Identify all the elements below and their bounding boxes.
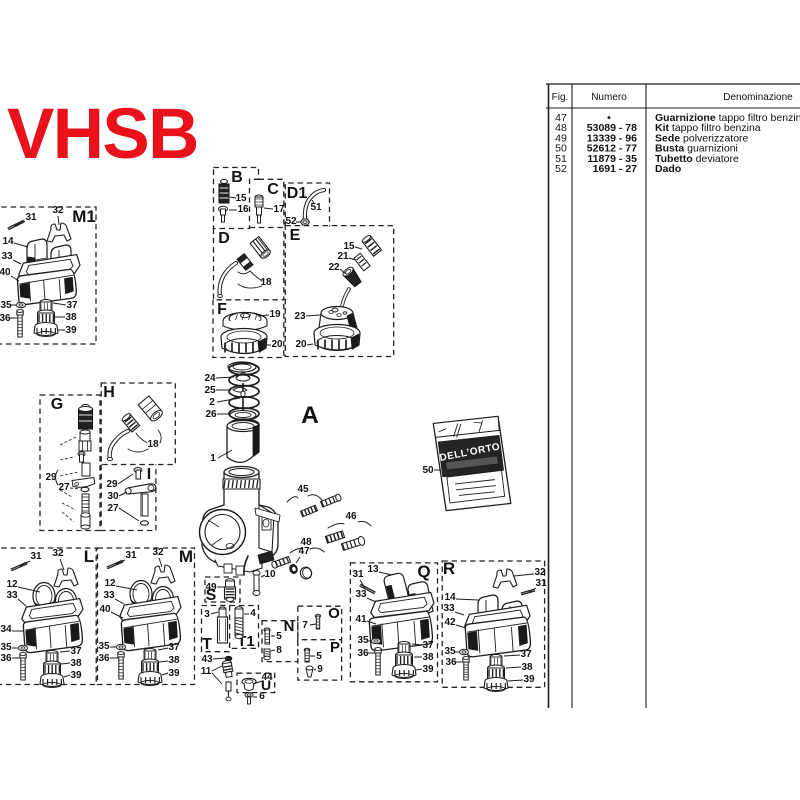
svg-text:Denominazione: Denominazione xyxy=(723,92,793,103)
svg-text:39: 39 xyxy=(70,670,82,681)
svg-text:12: 12 xyxy=(104,578,116,589)
svg-text:L: L xyxy=(84,547,94,566)
svg-text:31: 31 xyxy=(25,212,37,223)
svg-text:5: 5 xyxy=(276,631,282,642)
svg-text:34: 34 xyxy=(0,624,12,635)
svg-text:33: 33 xyxy=(6,590,18,601)
svg-text:18: 18 xyxy=(147,439,159,450)
svg-text:33: 33 xyxy=(443,603,455,614)
svg-text:38: 38 xyxy=(521,662,533,673)
svg-text:46: 46 xyxy=(345,511,357,522)
svg-text:38: 38 xyxy=(70,658,82,669)
svg-text:33: 33 xyxy=(355,589,367,600)
svg-text:F: F xyxy=(217,301,227,318)
svg-text:27: 27 xyxy=(58,482,70,493)
svg-text:T: T xyxy=(202,636,212,653)
svg-text:36: 36 xyxy=(0,313,11,324)
svg-text:35: 35 xyxy=(98,641,110,652)
svg-text:38: 38 xyxy=(65,312,77,323)
svg-text:39: 39 xyxy=(422,664,434,675)
svg-text:39: 39 xyxy=(65,325,77,336)
svg-text:19: 19 xyxy=(269,309,281,320)
svg-text:14: 14 xyxy=(2,236,14,247)
svg-text:24: 24 xyxy=(204,373,216,384)
svg-text:15: 15 xyxy=(235,193,247,204)
svg-text:6: 6 xyxy=(259,691,265,702)
svg-text:2: 2 xyxy=(209,397,215,408)
svg-text:35: 35 xyxy=(444,646,456,657)
svg-text:36: 36 xyxy=(0,653,12,664)
svg-text:B: B xyxy=(231,169,243,186)
svg-text:40: 40 xyxy=(0,267,11,278)
svg-text:Q: Q xyxy=(417,562,430,581)
svg-text:9: 9 xyxy=(317,664,323,675)
svg-text:43: 43 xyxy=(201,654,213,665)
svg-text:37: 37 xyxy=(70,646,82,657)
svg-text:38: 38 xyxy=(422,652,434,663)
svg-text:3: 3 xyxy=(204,609,210,620)
svg-text:33: 33 xyxy=(1,251,13,262)
svg-text:42: 42 xyxy=(444,617,456,628)
svg-text:13: 13 xyxy=(367,564,379,575)
svg-text:32: 32 xyxy=(52,548,64,559)
svg-text:52: 52 xyxy=(555,163,567,175)
svg-text:I: I xyxy=(147,466,151,483)
svg-text:33: 33 xyxy=(103,590,115,601)
svg-text:36: 36 xyxy=(445,657,457,668)
svg-text:11: 11 xyxy=(201,666,212,677)
svg-text:50: 50 xyxy=(422,465,434,476)
svg-text:D: D xyxy=(218,230,230,247)
svg-text:4: 4 xyxy=(250,608,256,619)
svg-text:12: 12 xyxy=(6,579,18,590)
svg-text:C: C xyxy=(267,181,279,198)
svg-text:31: 31 xyxy=(535,578,547,589)
svg-text:25: 25 xyxy=(204,385,216,396)
svg-text:47: 47 xyxy=(298,546,310,557)
svg-text:31: 31 xyxy=(352,569,364,580)
svg-text:52: 52 xyxy=(285,216,297,227)
svg-text:1691 - 27: 1691 - 27 xyxy=(593,163,638,175)
svg-text:14: 14 xyxy=(444,592,456,603)
svg-text:G: G xyxy=(51,396,63,413)
svg-text:A: A xyxy=(301,402,319,429)
svg-text:D1: D1 xyxy=(287,185,308,202)
svg-text:36: 36 xyxy=(98,653,110,664)
svg-text:5: 5 xyxy=(316,651,322,662)
svg-text:P: P xyxy=(330,639,340,656)
svg-text:32: 32 xyxy=(152,547,164,558)
svg-text:16: 16 xyxy=(237,204,249,215)
svg-text:32: 32 xyxy=(534,567,546,578)
svg-text:31: 31 xyxy=(30,551,42,562)
svg-text:31: 31 xyxy=(125,550,137,561)
svg-text:37: 37 xyxy=(168,642,180,653)
svg-text:30: 30 xyxy=(107,491,119,502)
svg-text:44: 44 xyxy=(261,672,273,683)
svg-text:35: 35 xyxy=(0,642,12,653)
svg-text:20: 20 xyxy=(271,339,283,350)
svg-text:VHSB: VHSB xyxy=(7,95,198,174)
svg-text:39: 39 xyxy=(168,668,180,679)
svg-text:27: 27 xyxy=(107,503,119,514)
svg-text:20: 20 xyxy=(295,339,307,350)
svg-text:38: 38 xyxy=(168,655,180,666)
svg-text:R: R xyxy=(443,559,455,578)
svg-text:E: E xyxy=(290,227,301,244)
svg-text:1: 1 xyxy=(210,453,216,464)
svg-text:37: 37 xyxy=(66,300,78,311)
svg-text:10: 10 xyxy=(264,569,276,580)
svg-text:21: 21 xyxy=(337,251,349,262)
svg-text:49: 49 xyxy=(205,582,217,593)
svg-text:51: 51 xyxy=(310,202,322,213)
svg-text:45: 45 xyxy=(297,484,309,495)
svg-text:7: 7 xyxy=(302,620,308,631)
svg-text:23: 23 xyxy=(294,311,306,322)
svg-text:32: 32 xyxy=(52,205,64,216)
svg-text:Dado: Dado xyxy=(655,163,681,175)
svg-text:8: 8 xyxy=(276,645,282,656)
svg-text:N: N xyxy=(284,618,295,635)
svg-text:37: 37 xyxy=(520,649,532,660)
svg-text:35: 35 xyxy=(357,635,369,646)
svg-text:35: 35 xyxy=(0,300,12,311)
svg-text:M1: M1 xyxy=(72,207,96,226)
svg-text:17: 17 xyxy=(273,204,285,215)
svg-text:22: 22 xyxy=(328,262,340,273)
svg-text:26: 26 xyxy=(205,409,217,420)
svg-text:M: M xyxy=(179,547,193,566)
svg-text:40: 40 xyxy=(99,604,111,615)
svg-text:37: 37 xyxy=(422,640,434,651)
svg-text:29: 29 xyxy=(106,479,118,490)
svg-text:Numero: Numero xyxy=(591,92,627,103)
svg-text:41: 41 xyxy=(355,614,367,625)
svg-text:H: H xyxy=(103,384,115,401)
svg-text:39: 39 xyxy=(523,674,535,685)
svg-text:Fig.: Fig. xyxy=(552,92,569,103)
svg-text:O: O xyxy=(328,605,340,622)
svg-text:36: 36 xyxy=(357,648,369,659)
